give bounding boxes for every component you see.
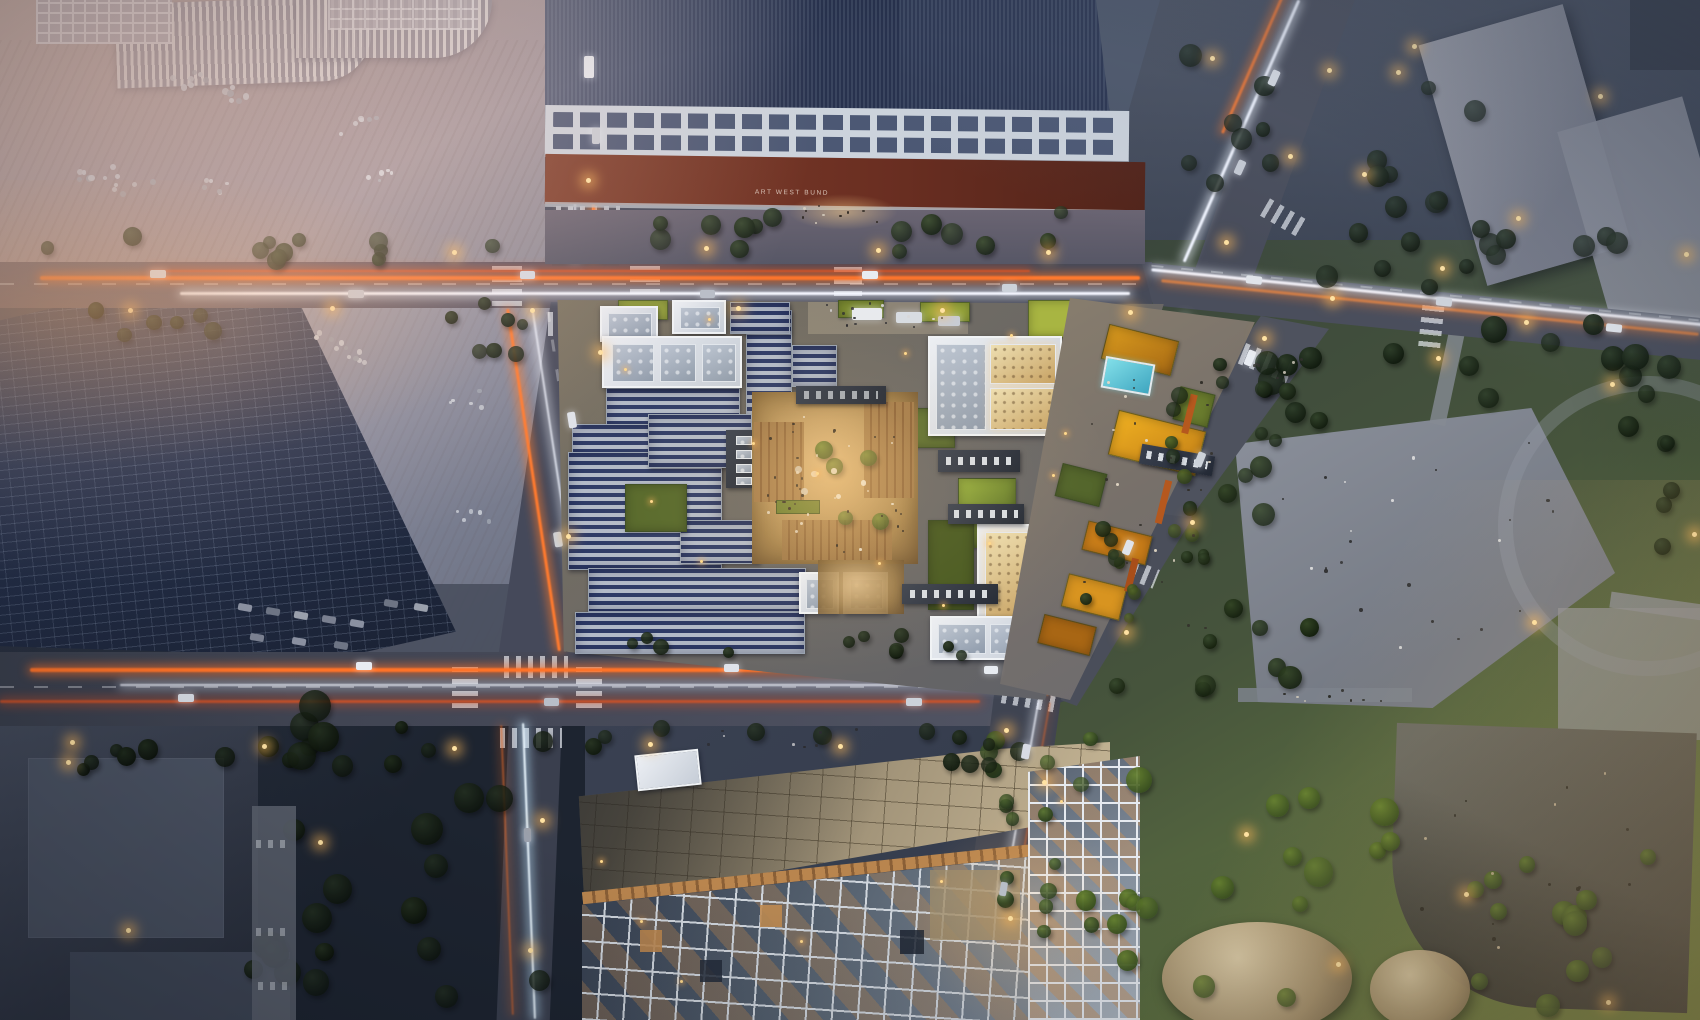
roof-light [904, 352, 907, 355]
tree-row-item [943, 753, 960, 770]
path-marking [258, 982, 292, 990]
tree-band-item [1481, 316, 1508, 343]
plaza-people-item [1324, 569, 1328, 573]
path-marking [256, 840, 290, 848]
tree-row-item [1040, 755, 1054, 769]
roof-light [1064, 432, 1067, 435]
tree-band-item [1262, 154, 1279, 171]
plaza-people-item [1340, 561, 1343, 564]
streetlamp [1288, 154, 1293, 159]
east-plaza-people-item [1204, 627, 1207, 630]
tree-cluster-item [1660, 436, 1674, 450]
park-lamp [1244, 832, 1249, 837]
tree-band-item [1464, 100, 1486, 122]
vent-cluster-item [225, 182, 228, 185]
tree-cluster-item [1252, 620, 1268, 636]
skylight-panel [608, 313, 652, 337]
tree-row-item [641, 632, 653, 644]
tree-band-item [1421, 81, 1435, 95]
roof-light [624, 368, 627, 371]
vent-cluster [352, 166, 396, 188]
gravel-people [1420, 762, 1640, 958]
tree-cluster-item [1224, 599, 1243, 618]
car [1606, 323, 1623, 333]
east-plaza-people-item [1161, 581, 1163, 583]
tree-row-item [983, 738, 995, 750]
crossing-people-item [1292, 361, 1294, 363]
tree-band-item [1316, 265, 1339, 288]
bl-building-block [28, 758, 224, 938]
white-skylight-block [672, 300, 726, 334]
courtyard-people-item [895, 509, 898, 512]
car [984, 666, 998, 674]
streetlamp [128, 308, 133, 313]
sidewalk-people-item [723, 735, 725, 737]
courtyard-people-item [843, 551, 845, 553]
gravel-people-item [1554, 803, 1556, 805]
tree-cluster-item [1076, 890, 1096, 910]
entrance-people-item [822, 214, 824, 216]
tree-cluster-item [1381, 832, 1400, 851]
tree-cluster-item [1663, 482, 1680, 499]
streetlamp [452, 746, 457, 751]
plaza-people-item [1359, 608, 1363, 612]
roof-light [878, 562, 881, 565]
facade-wood-cell [760, 905, 782, 927]
tree-row-item [193, 308, 208, 323]
courtyard-people-item [801, 477, 803, 479]
courtyard-people-item [803, 416, 805, 418]
tree-row-item [472, 344, 487, 359]
gravel-people-item [1576, 887, 1579, 890]
east-plaza-people-item [1208, 461, 1210, 463]
sidewalk-people-item [932, 318, 935, 321]
plaza-people-item [1344, 481, 1346, 483]
tree-row-item [292, 233, 306, 247]
tree-row-item [763, 208, 782, 227]
tree-band-item [1385, 196, 1407, 218]
vent-cluster-item [114, 183, 118, 187]
tree-band-item [1383, 343, 1404, 364]
courtyard-people-item [874, 436, 876, 438]
tree-row [556, 626, 1006, 662]
car [862, 271, 878, 279]
east-plaza-people-item [1091, 423, 1094, 426]
courtyard-people-item [891, 442, 893, 444]
tree-forest-item [315, 943, 334, 962]
east-plaza-people-item [1112, 429, 1115, 432]
ne-corner-block [1630, 0, 1700, 70]
tree-row-item [999, 794, 1014, 809]
tree-cluster-item [1136, 897, 1158, 919]
plaza-people-item [1350, 530, 1352, 532]
roof-light [942, 604, 945, 607]
entrance-people-item [847, 211, 850, 214]
vent-cluster-item [357, 349, 363, 355]
tree-row-item [730, 240, 748, 258]
vent-cluster-item [236, 98, 242, 104]
courtyard-people-item [900, 513, 902, 515]
park-lamp [1210, 56, 1215, 61]
vent-cluster-item [479, 405, 484, 410]
skylight-panel [936, 344, 986, 430]
entrance-people-item [839, 215, 842, 218]
park-path-people-item [1380, 700, 1382, 702]
courtyard [752, 392, 918, 564]
lane-dashes [0, 283, 1140, 285]
east-plaza-people-item [1107, 381, 1110, 384]
atrium-block-ne [928, 336, 1062, 436]
tree-row-item [508, 346, 523, 361]
tree-row-item [1109, 678, 1125, 694]
skylight-dot [736, 477, 752, 485]
plaza-people-item [1431, 620, 1434, 623]
vent-cluster-item [314, 335, 319, 340]
tree-band-item [1622, 344, 1648, 370]
gravel-people-item [1548, 883, 1551, 886]
streetlamp [540, 818, 545, 823]
park-lamp [1464, 892, 1469, 897]
tree-cluster-item [1298, 787, 1320, 809]
courtyard-people-item [800, 522, 803, 525]
vent-cluster [112, 174, 158, 198]
sidewalk-people-item [721, 730, 723, 732]
streetlamp [1396, 70, 1401, 75]
park-path-people-item [1304, 700, 1306, 702]
skylight-panel [680, 307, 720, 329]
car [524, 828, 531, 842]
sidewalk-people-item [826, 304, 828, 306]
crossing-people-item [1300, 358, 1303, 361]
roof-light [640, 920, 643, 923]
vent-cluster [200, 176, 244, 198]
courtyard-people-item [801, 494, 804, 497]
sidewalk-people-item [819, 731, 822, 734]
tree-row-item [858, 631, 870, 643]
streetlamp [598, 350, 603, 355]
streetlamp [1330, 296, 1335, 301]
tree-cluster-item [1195, 675, 1216, 696]
tree-row-item [271, 249, 287, 265]
walkway-canopy [948, 504, 1024, 524]
sidewalk-people [700, 728, 870, 748]
park-lamp [1684, 252, 1689, 257]
car [1436, 297, 1453, 307]
aerial-render-city-block: ART WEST BUND [0, 0, 1700, 1020]
sidewalk-people-item [792, 743, 795, 746]
roof-light [1052, 474, 1055, 477]
tree-row-item [723, 647, 734, 658]
courtyard-people-item [834, 497, 836, 499]
plaza-people-item [1552, 510, 1555, 513]
vent-cluster-item [192, 70, 197, 75]
tree-cluster-item [1250, 456, 1272, 478]
east-plaza-people-item [1173, 559, 1175, 561]
path-lamp [126, 928, 131, 933]
park-lamp [1336, 962, 1341, 967]
gravel-people-item [1491, 872, 1495, 876]
crossing-people-item [1253, 364, 1256, 367]
sidewalk-people-item [881, 304, 884, 307]
tree-row-item [961, 755, 979, 773]
courtyard-people-item [836, 544, 838, 546]
courtyard-people-item [847, 510, 850, 513]
courtyard-south [818, 560, 904, 614]
streetlamp [1004, 728, 1009, 733]
streetlamp [1436, 356, 1441, 361]
vent-cluster-item [229, 98, 234, 103]
courtyard-people-item [769, 437, 772, 440]
park-lamp [1532, 620, 1537, 625]
streetlamp [736, 306, 741, 311]
bus [584, 56, 594, 78]
courtyard-people-item [807, 513, 810, 516]
car [906, 698, 922, 706]
plaza-people-item [1407, 583, 1411, 587]
tree-cluster [1616, 370, 1700, 630]
tree-row-item [84, 755, 99, 770]
tree-row-item [486, 343, 501, 358]
vent-cluster [456, 508, 496, 530]
window-row [553, 112, 1119, 133]
tree-band-item [1606, 232, 1628, 254]
courtyard-people-item [867, 490, 869, 492]
light-trail-white [120, 684, 1020, 686]
sidewalk-people [806, 302, 956, 328]
streetlamp [1610, 382, 1615, 387]
east-plaza-people-item [1187, 489, 1190, 492]
tree-band-item [1459, 356, 1478, 375]
roof-light [988, 542, 991, 545]
streetlamp [1008, 916, 1013, 921]
park-lamp [1598, 94, 1603, 99]
tree-cluster-item [1107, 914, 1128, 935]
vent-cluster [336, 348, 380, 370]
tree-row-item [653, 216, 668, 231]
roof-light [708, 318, 711, 321]
vent-cluster-item [390, 171, 394, 175]
streetlamp [70, 740, 75, 745]
tree-cluster-item [1656, 497, 1672, 513]
streetlamp [1327, 68, 1332, 73]
east-plaza-people-item [1083, 581, 1085, 583]
plaza-people-item [1412, 456, 1416, 460]
vent-cluster-item [77, 177, 82, 182]
vent-cluster-item [362, 360, 367, 365]
path-lamp [318, 840, 323, 845]
vent-cluster-item [170, 75, 176, 81]
tree-row-item [892, 244, 907, 259]
courtyard-people-item [893, 436, 895, 438]
courtyard-people-item [848, 445, 851, 448]
streetlamp [528, 948, 533, 953]
tree-row-item [1039, 899, 1054, 914]
plaza-people-item [1519, 610, 1522, 613]
east-plaza-people-item [1200, 381, 1203, 384]
plaza-people-item [1282, 498, 1284, 500]
streetlamp [876, 248, 881, 253]
entrance-people-item [876, 221, 878, 223]
courtyard-people-item [796, 471, 799, 474]
vent-cluster-item [339, 132, 343, 136]
tree-band-item [1374, 260, 1391, 277]
tree-forest-item [299, 690, 331, 722]
vent-cluster-item [353, 121, 358, 126]
tree-row-item [653, 639, 669, 655]
white-skylight-block [602, 336, 742, 388]
streetlamp [1524, 320, 1529, 325]
tree-row-item [445, 311, 458, 324]
vent-cluster-item [120, 191, 126, 197]
plaza-people-item [1399, 646, 1402, 649]
car [592, 128, 600, 144]
car [1002, 284, 1017, 292]
tree-band-item [1181, 155, 1197, 171]
tree-row-item [1040, 883, 1056, 899]
facade-dark-cell [900, 930, 924, 954]
plaza-people-item [1509, 519, 1512, 522]
vent-cluster-item [367, 117, 372, 122]
east-plaza-people-item [1133, 387, 1136, 390]
gravel-people-item [1566, 786, 1568, 788]
plaza-people-item [1349, 540, 1352, 543]
car [700, 290, 715, 298]
courtyard-people-item [788, 507, 791, 510]
tree-band-item [1425, 192, 1447, 214]
plaza-people-item [1435, 469, 1437, 471]
streetlamp [1128, 310, 1133, 315]
solar-array [792, 345, 837, 387]
plaza-people-item [1546, 499, 1550, 503]
tree-row-item [170, 316, 184, 330]
tree-forest-item [302, 903, 332, 933]
grid-building-d [328, 0, 478, 30]
car [544, 698, 559, 706]
crossing-people-item [1276, 377, 1278, 379]
sidewalk-people-item [941, 317, 943, 319]
walkway-canopy [938, 450, 1020, 472]
vent-cluster-item [188, 76, 194, 82]
vent-cluster-item [379, 170, 384, 175]
streetlamp [1224, 240, 1229, 245]
tree-cluster-item [1370, 798, 1398, 826]
east-plaza-people-item [1206, 404, 1208, 406]
tree-row-item [117, 747, 136, 766]
tree-row-item [146, 315, 161, 330]
park-path-people-item [1350, 699, 1353, 702]
skylight-panel [612, 344, 654, 382]
vent-cluster-item [469, 509, 474, 514]
skylight-panel [702, 344, 736, 382]
vent-cluster-item [202, 185, 207, 190]
sidewalk-people-item [869, 302, 872, 305]
gravel-people-item [1497, 946, 1501, 950]
courtyard-people-item [795, 530, 798, 533]
tree-row-item [843, 636, 855, 648]
tree-row-item [1054, 206, 1068, 220]
roof-light [800, 940, 803, 943]
gravel-people-item [1465, 800, 1467, 802]
entrance-people-item [815, 222, 817, 224]
tree-cluster [1056, 730, 1426, 1020]
path-marking [256, 928, 290, 936]
east-plaza-people-item [1200, 489, 1203, 492]
forest-path [252, 806, 296, 1020]
tree-row-item [919, 723, 936, 740]
tree-forest-item [454, 783, 483, 812]
car [178, 694, 194, 702]
gravel-people-item [1492, 923, 1494, 925]
tree-row-item [1255, 427, 1268, 440]
vent-cluster-item [347, 355, 351, 359]
tree-forest-item [308, 722, 338, 752]
crossing-people-item [1288, 375, 1290, 377]
roof-light [680, 980, 683, 983]
east-plaza-people [1082, 362, 1222, 632]
tree-row-item [956, 650, 967, 661]
sidewalk-people-item [842, 312, 844, 314]
roof-light [1010, 334, 1013, 337]
tree-row-item [1037, 925, 1051, 939]
sidewalk-people-item [803, 746, 805, 748]
solar-array [588, 568, 806, 612]
sidewalk-people-item [851, 307, 854, 310]
gravel-people-item [1420, 907, 1424, 911]
tree-cluster-item [1471, 973, 1488, 990]
vent-cluster [168, 66, 216, 92]
tree-cluster-item [1117, 950, 1138, 971]
plaza-people-item [1391, 499, 1394, 502]
car [520, 271, 535, 279]
sidewalk-people-item [853, 317, 855, 319]
courtyard-people-item [775, 501, 777, 503]
tree-cluster-item [1277, 988, 1296, 1007]
walkway-canopy [796, 386, 886, 404]
vent-cluster-item [112, 187, 117, 192]
tree-row-item [485, 239, 500, 254]
vent-cluster [448, 388, 492, 410]
tree-band [1250, 218, 1700, 302]
tree-row-item [976, 236, 995, 255]
tree-forest-item [401, 897, 428, 924]
car [150, 270, 166, 278]
east-plaza-people-item [1116, 483, 1119, 486]
east-plaza-people-item [1154, 549, 1157, 552]
tree-band-item [1472, 220, 1490, 238]
east-plaza-people-item [1192, 534, 1195, 537]
tree-band-item [1583, 314, 1604, 335]
sidewalk-people-item [885, 322, 887, 324]
tree-row-item [204, 322, 222, 340]
park-path-people-item [1341, 689, 1344, 692]
vent-cluster-item [374, 116, 378, 120]
crossing-people [1235, 348, 1305, 388]
tree-forest-item [424, 854, 448, 878]
gravel-people-item [1492, 937, 1496, 941]
solar-array [680, 520, 760, 564]
east-plaza-people-item [1170, 457, 1172, 459]
sidewalk-people-item [830, 309, 833, 312]
park-path-people-item [1283, 693, 1286, 696]
skylight-dot [736, 450, 752, 459]
courtyard-people-item [783, 501, 786, 504]
east-plaza-people-item [1187, 624, 1190, 627]
lit-interior [990, 388, 1056, 430]
streetlamp [1440, 266, 1445, 271]
gravel-people-item [1424, 837, 1427, 840]
vent-cluster-item [339, 340, 345, 346]
top-building-roof [545, 0, 1123, 118]
